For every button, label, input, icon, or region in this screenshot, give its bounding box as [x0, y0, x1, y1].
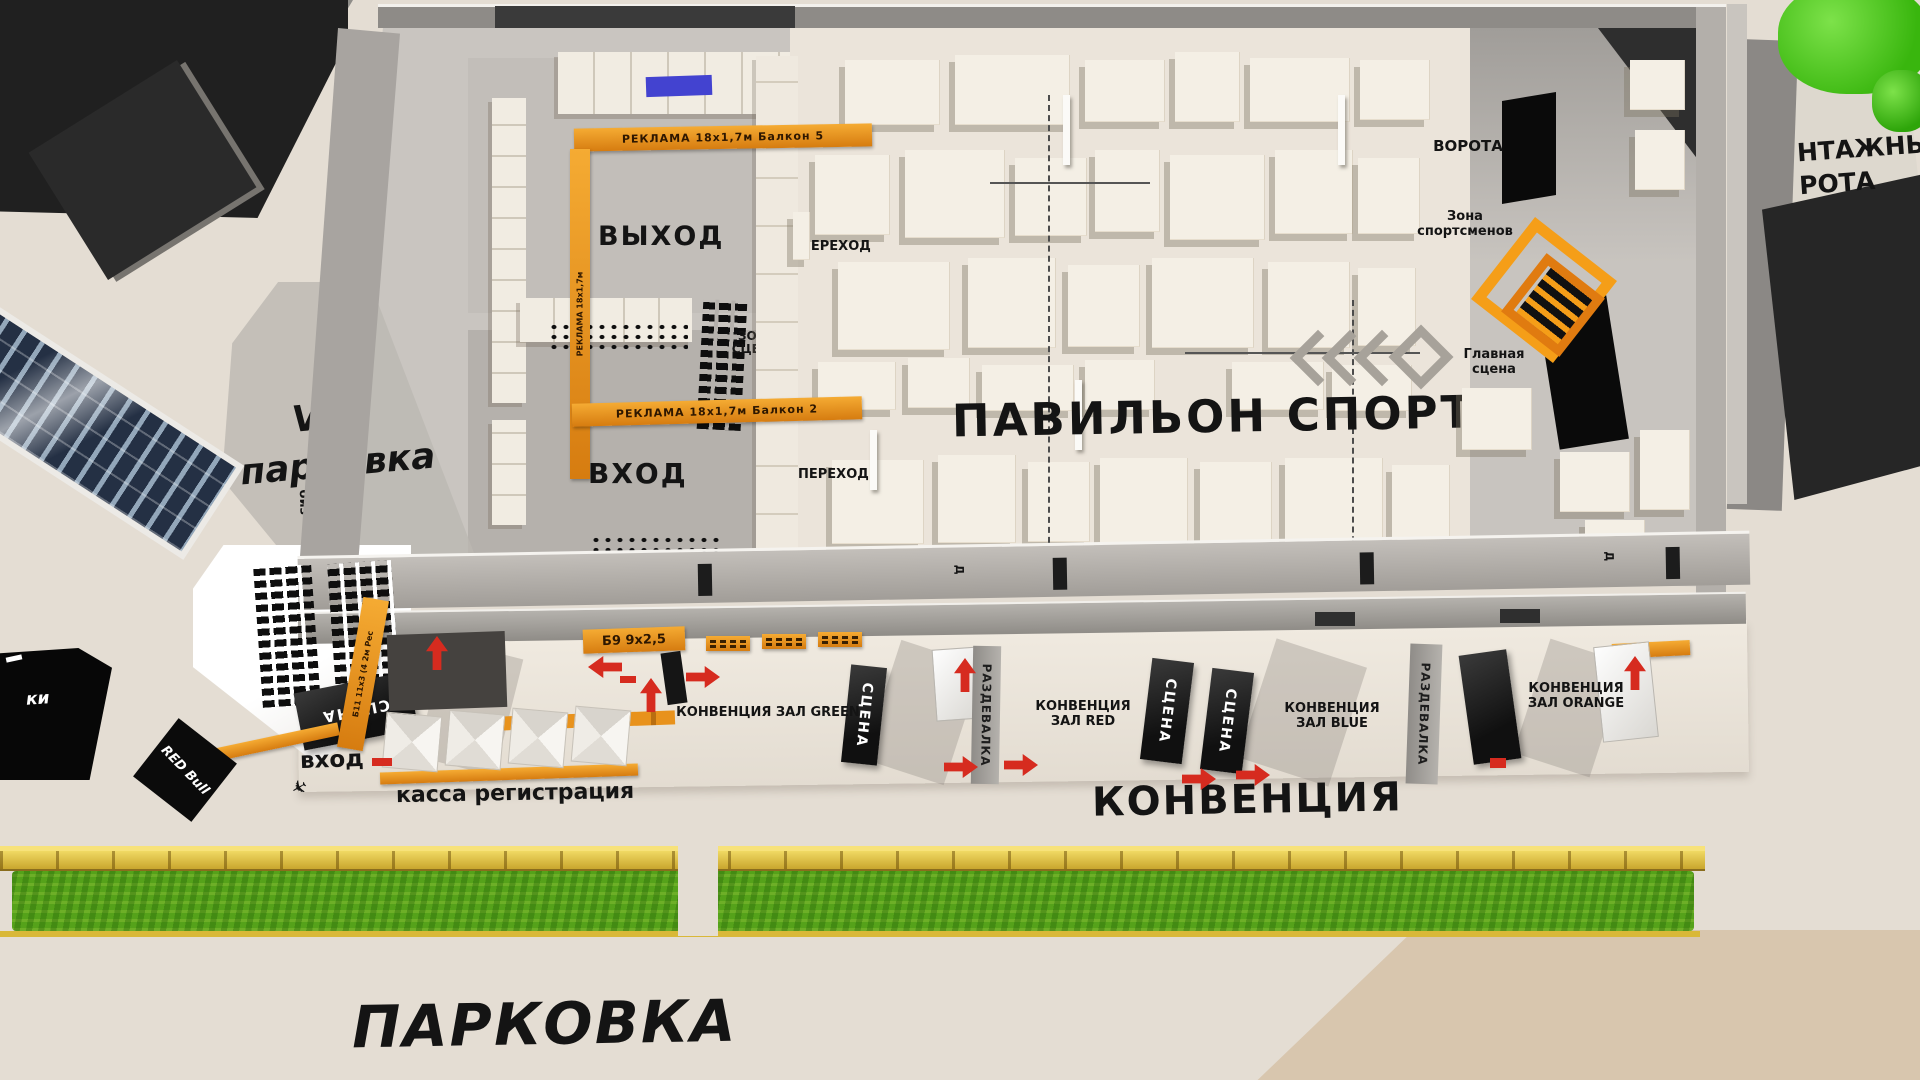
wall-door	[1360, 552, 1375, 584]
athletes-zone-label: Зона спортсменов	[1400, 210, 1530, 239]
red-dash-mark	[620, 676, 636, 683]
main-stage-label: Главная сцена	[1448, 348, 1540, 377]
gates-doorway	[1502, 92, 1556, 204]
fence-rail-bottom	[0, 931, 1700, 937]
dressing-label-2: РАЗДЕВАЛКА	[1415, 662, 1433, 765]
grass-strip	[12, 871, 1694, 931]
redbull-flag-label: RED Bull	[158, 742, 212, 797]
small-sign	[818, 632, 862, 647]
exhibit-box	[968, 258, 1056, 348]
passage-bottom-label: ПЕРЕХОД	[798, 468, 869, 483]
exhibit-box	[1200, 462, 1272, 544]
pole	[1063, 95, 1070, 165]
exhibit-box	[1085, 60, 1165, 122]
exhibit-box	[815, 155, 890, 235]
exhibit-box	[838, 262, 950, 350]
wall-door-label: Д	[1602, 551, 1614, 561]
registration-tent	[571, 706, 632, 767]
exhibit-box	[1285, 458, 1383, 544]
green-hall-label: КОНВЕНЦИЯ ЗАЛ GREEN	[668, 706, 868, 721]
wall-door-label: Д	[953, 565, 965, 575]
ad-banner-side: РЕКЛАМА 18х1,7м	[570, 149, 590, 479]
main-stage-white-slab	[1462, 388, 1532, 450]
entrance-label: ВХОД	[588, 458, 688, 489]
exhibit-box	[1170, 155, 1265, 240]
exhibit-box	[1560, 452, 1630, 512]
ad-banner-side-text: РЕКЛАМА 18х1,7м	[576, 272, 585, 357]
pavilion-right-wall	[1696, 4, 1726, 596]
exhibit-box	[955, 55, 1070, 125]
red-hall-line1: КОНВЕНЦИЯ	[1008, 700, 1158, 715]
exhibit-box	[1028, 462, 1090, 542]
main-stage-line1: Главная	[1448, 348, 1540, 363]
dressing-wall-1: РАЗДЕВАЛКА	[971, 646, 1001, 784]
venue-map: VIP парковка биз ки СЦЕНА RED Bull ✈ ВОР…	[0, 0, 1920, 1080]
wall-door	[1053, 558, 1068, 590]
ad-banner-balcony2-text: РЕКЛАМА 18х1,7м Балкон 2	[616, 402, 818, 420]
entrance-dash	[372, 758, 392, 766]
exhibit-box	[1250, 58, 1350, 122]
exhibit-box	[1360, 60, 1430, 120]
exhibit-box	[1268, 262, 1350, 348]
exhibit-box	[1152, 258, 1254, 348]
floor-dashed-line1	[1048, 95, 1050, 563]
exhibit-box	[1175, 52, 1240, 122]
exit-room-chairs	[548, 322, 688, 354]
exhibit-box	[1015, 158, 1087, 236]
floor-line2	[990, 182, 1150, 184]
blue-hall-line1: КОНВЕНЦИЯ	[1252, 702, 1412, 717]
ad-banner-balcony5-text: РЕКЛАМА 18х1,7м Балкон 5	[622, 129, 824, 146]
convention-title: КОНВЕНЦИЯ	[1092, 775, 1404, 825]
gates-label: ВОРОТА	[1428, 138, 1508, 155]
pavilion-title: ПАВИЛЬОН СПОРТ	[952, 387, 1475, 446]
exhibit-box	[845, 60, 940, 125]
exhibit-box	[1100, 458, 1188, 544]
sponsor-banner-text: ки	[25, 689, 50, 710]
banner-b9-text: Б9 9х2,5	[602, 631, 666, 648]
athletes-zone-line1: Зона	[1400, 210, 1530, 225]
parking-label: ПАРКОВКА	[351, 989, 737, 1061]
athletes-zone-line2: спортсменов	[1400, 225, 1530, 240]
exhibit-box	[1392, 465, 1450, 540]
red-stage1-label: СЦЕНА	[1155, 678, 1179, 745]
vip-tent-seats-left	[253, 564, 321, 708]
exhibit-box	[905, 150, 1005, 238]
blue-hall-line2: ЗАЛ BLUE	[1252, 717, 1412, 732]
orange-hall-line2: ЗАЛ ORANGE	[1496, 697, 1656, 712]
pavilion-top-wall-dark	[495, 6, 795, 28]
exhibit-box	[1630, 60, 1685, 110]
exhibit-box	[1068, 265, 1140, 347]
mounting-gates-label: НТАЖНЫЕ РОТА	[1796, 127, 1920, 202]
orange-stage-mark	[1490, 758, 1506, 768]
exhibit-box	[1095, 150, 1160, 232]
wall-slab	[1500, 609, 1540, 623]
blue-hall-label: КОНВЕНЦИЯ ЗАЛ BLUE	[1252, 702, 1412, 731]
small-sign	[706, 636, 750, 651]
sponsor-banner-fragment	[6, 654, 23, 662]
red-stage2-label: СЦЕНА	[1215, 688, 1239, 755]
wall-door	[698, 564, 713, 596]
exhibit-box	[1635, 130, 1685, 190]
passage-top-label: ПЕРЕХОД	[800, 240, 871, 255]
small-sign	[762, 634, 806, 649]
blue-screen	[646, 75, 713, 97]
pavilion-right-wall2	[1727, 4, 1747, 504]
wall-slab	[1315, 612, 1355, 626]
grass-gap-walkway	[678, 844, 718, 936]
fence	[0, 851, 1705, 871]
exhibit-box	[938, 455, 1016, 543]
banner-b9: Б9 9х2,5	[583, 626, 686, 654]
red-hall-label: КОНВЕНЦИЯ ЗАЛ RED	[1008, 700, 1158, 729]
exhibit-box	[1640, 430, 1690, 510]
registration-tent	[508, 708, 569, 769]
convention-entrance-label: вход	[300, 747, 365, 775]
main-stage-line2: сцена	[1448, 363, 1540, 378]
dressing-label-1: РАЗДЕВАЛКА	[978, 663, 994, 766]
pole	[1338, 95, 1345, 165]
wall-door	[1666, 547, 1681, 579]
red-hall-line2: ЗАЛ RED	[1008, 715, 1158, 730]
exit-label: ВЫХОД	[598, 222, 724, 252]
tree	[1872, 70, 1920, 132]
registration-tent	[445, 710, 506, 771]
registration-dark-mat	[387, 631, 508, 711]
pole	[870, 430, 877, 490]
passage-top-cover-box	[793, 212, 810, 260]
registration-label: касса регистрация	[396, 780, 635, 809]
